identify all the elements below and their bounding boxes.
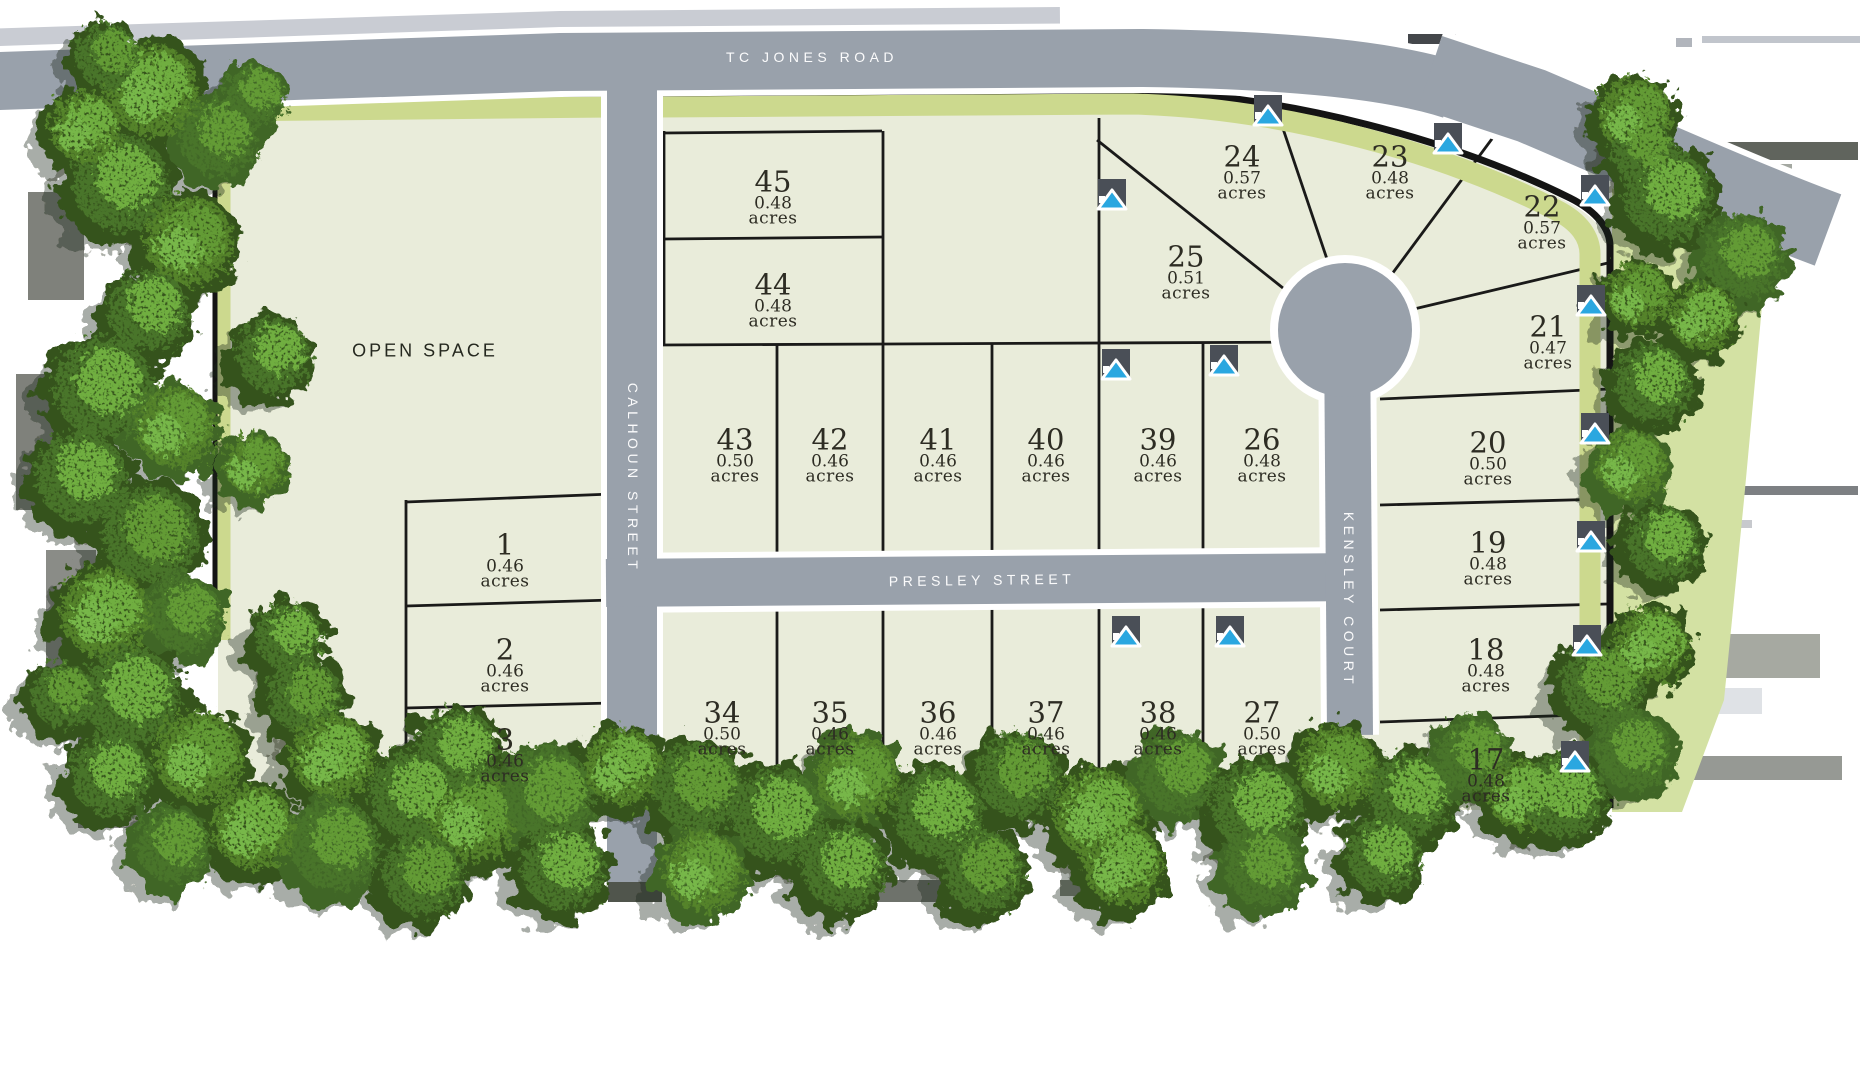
home-marker-icon[interactable]: [1098, 179, 1126, 209]
home-marker-icon[interactable]: [1577, 285, 1605, 315]
plat-map-svg: [0, 0, 1860, 1083]
main-parcel: [658, 94, 1608, 810]
home-marker-icon[interactable]: [1561, 741, 1589, 771]
home-marker-icon[interactable]: [1573, 625, 1601, 655]
home-marker-icon[interactable]: [1102, 349, 1130, 379]
home-marker-icon[interactable]: [1581, 175, 1609, 205]
site-plan-map: TC JONES ROAD CALHOUN STREET PRESLEY STR…: [0, 0, 1860, 1083]
home-marker-icon[interactable]: [1216, 616, 1244, 646]
home-marker-icon[interactable]: [1577, 521, 1605, 551]
home-marker-icon[interactable]: [1254, 95, 1282, 125]
parcels: [218, 94, 1608, 812]
presley-street-road: [606, 577, 1360, 583]
home-marker-icon[interactable]: [1210, 345, 1238, 375]
home-marker-icon[interactable]: [1434, 123, 1462, 153]
home-marker-icon[interactable]: [1112, 616, 1140, 646]
home-marker-icon[interactable]: [1581, 413, 1609, 443]
cul-de-sac: [1278, 263, 1412, 397]
